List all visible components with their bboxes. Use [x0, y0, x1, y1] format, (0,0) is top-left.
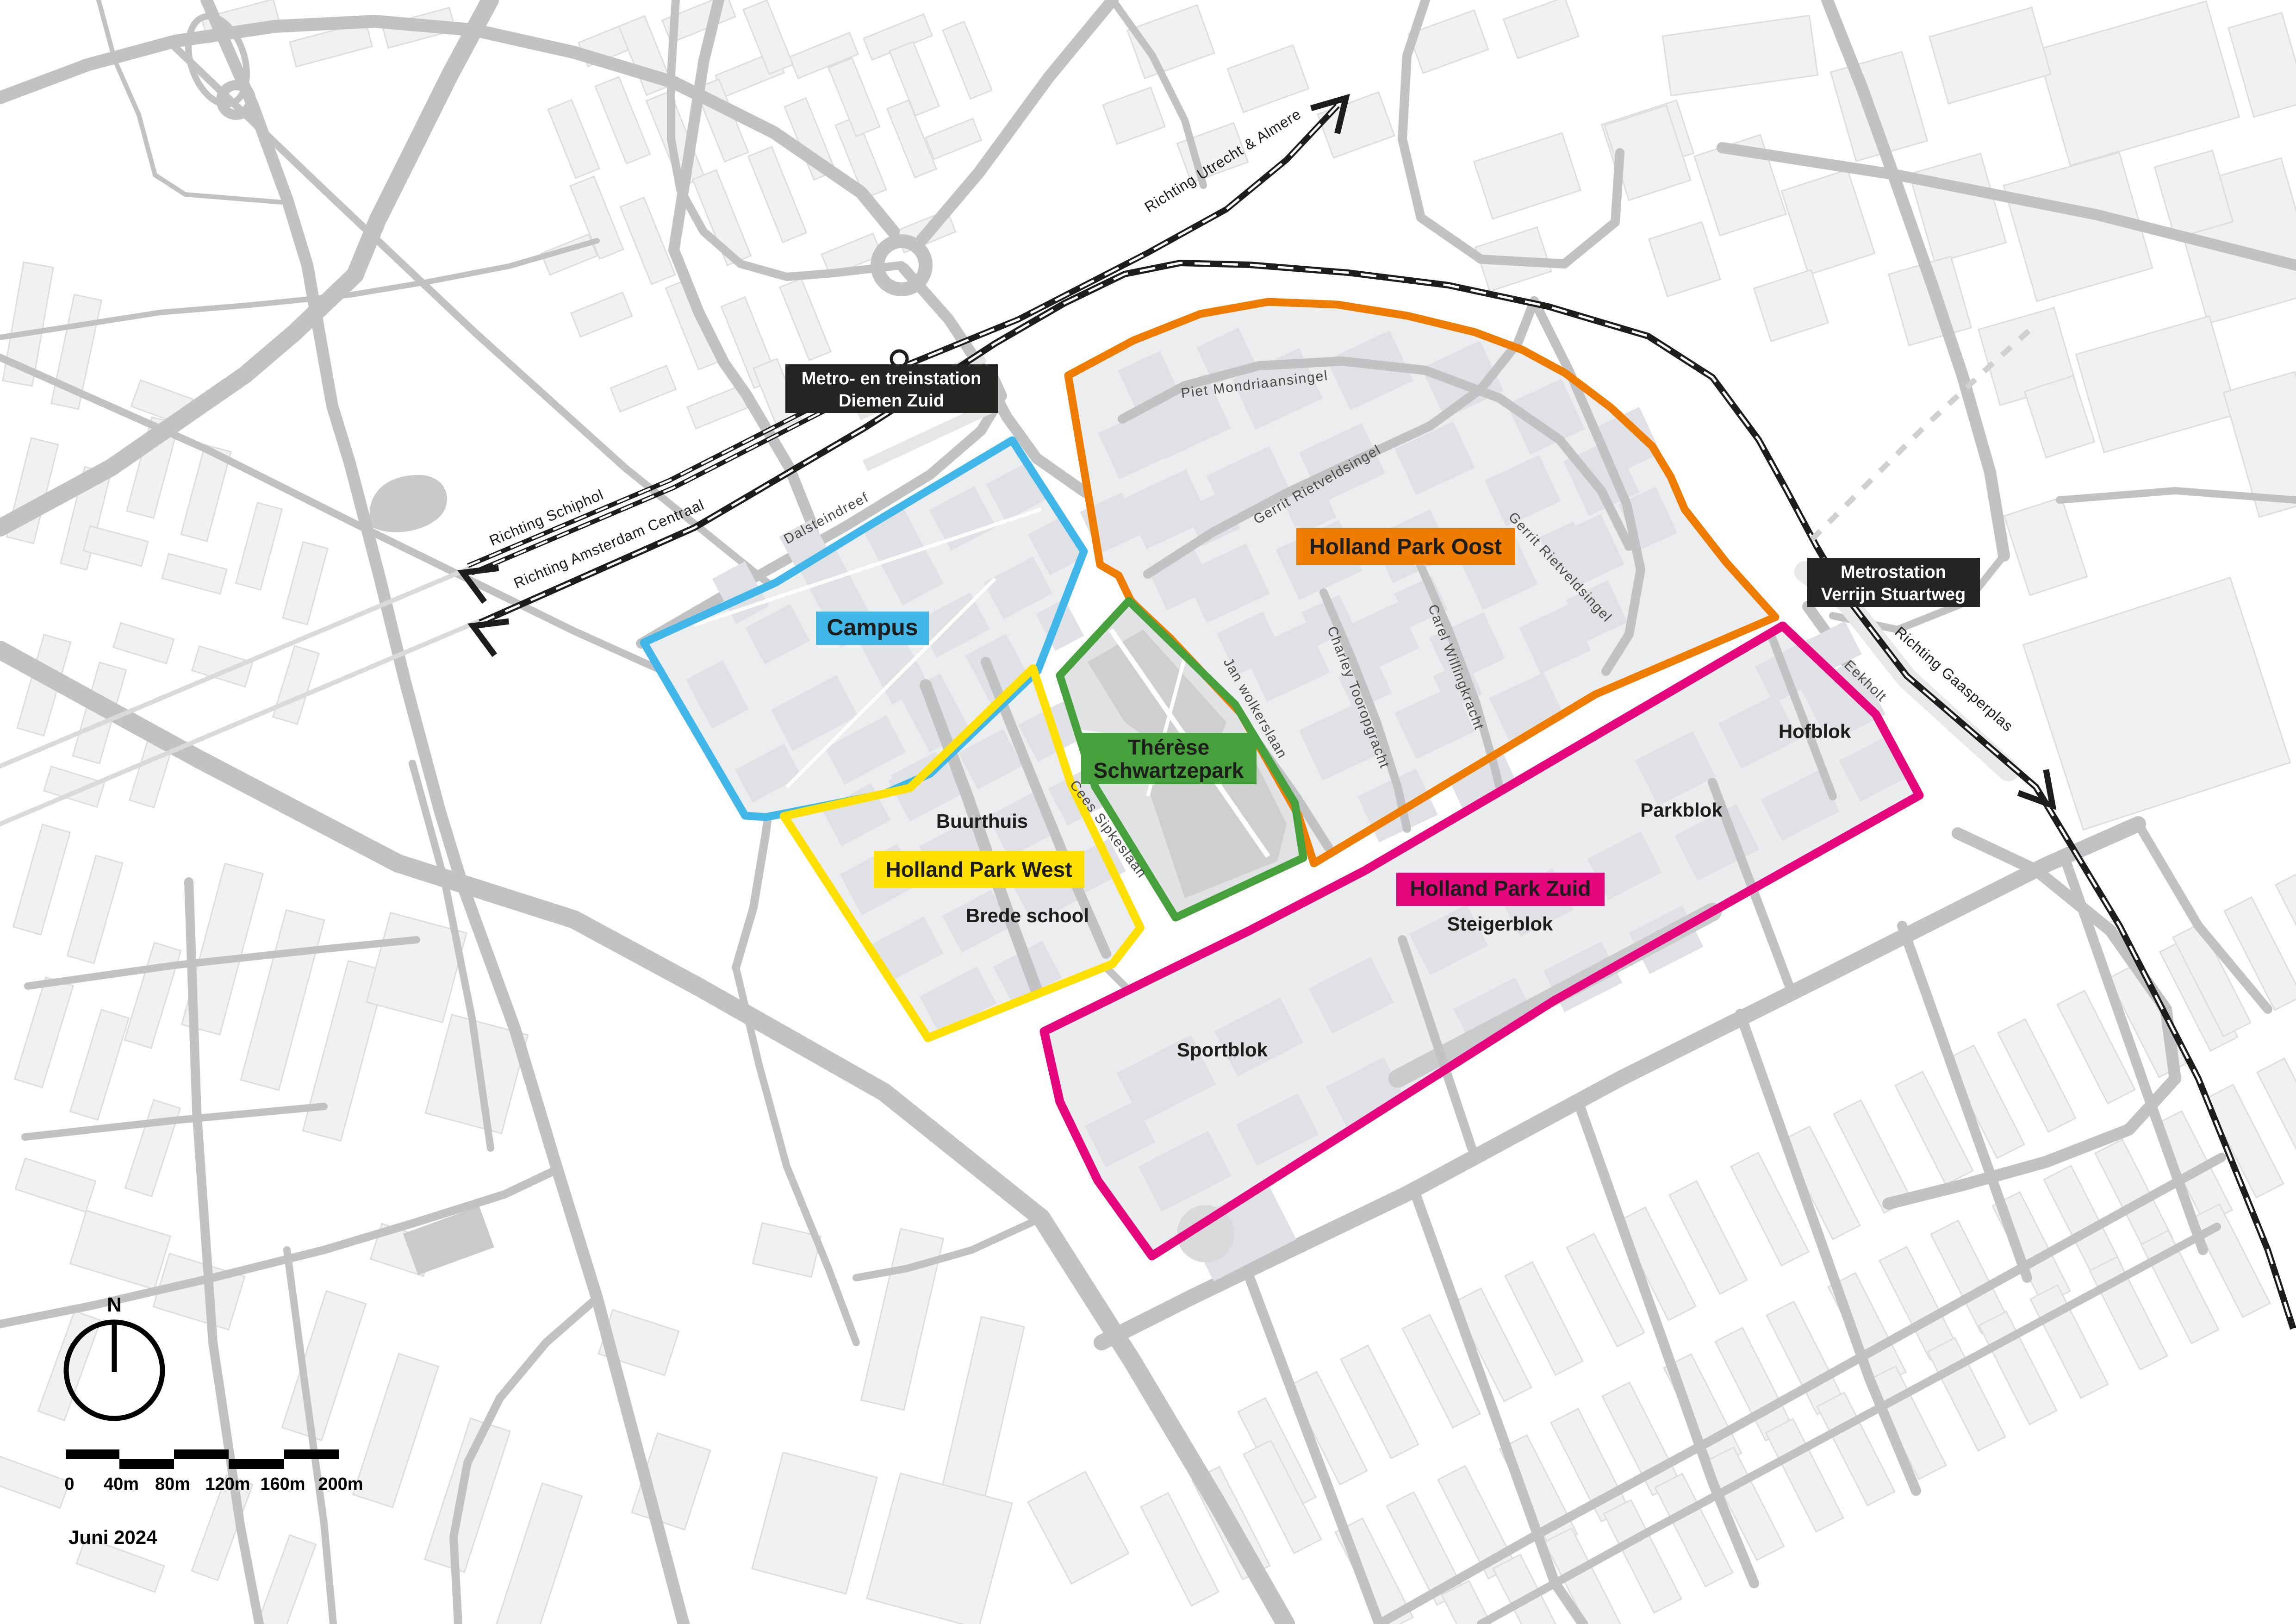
svg-text:Buurthuis: Buurthuis [936, 810, 1028, 832]
svg-text:Verrijn Stuartweg: Verrijn Stuartweg [1821, 585, 1966, 604]
svg-text:0: 0 [64, 1474, 74, 1494]
svg-text:Holland Park Oost: Holland Park Oost [1309, 535, 1502, 559]
svg-text:N: N [107, 1293, 122, 1316]
svg-text:Sportblok: Sportblok [1177, 1039, 1268, 1061]
svg-text:Metrostation: Metrostation [1841, 562, 1946, 582]
svg-text:Campus: Campus [827, 614, 918, 640]
svg-text:Metro- en treinstation: Metro- en treinstation [802, 369, 981, 388]
svg-text:Hofblok: Hofblok [1779, 720, 1851, 742]
svg-text:Schwartzepark: Schwartzepark [1094, 758, 1244, 782]
svg-text:Parkblok: Parkblok [1640, 799, 1723, 821]
svg-text:Holland Park Zuid: Holland Park Zuid [1410, 876, 1591, 900]
svg-text:200m: 200m [318, 1474, 363, 1494]
svg-text:160m: 160m [260, 1474, 305, 1494]
svg-text:Thérèse: Thérèse [1128, 735, 1209, 759]
svg-text:Diemen Zuid: Diemen Zuid [839, 391, 944, 411]
svg-text:80m: 80m [155, 1474, 190, 1494]
svg-text:Juni 2024: Juni 2024 [68, 1526, 157, 1548]
svg-text:120m: 120m [205, 1474, 250, 1494]
svg-text:Steigerblok: Steigerblok [1447, 913, 1553, 935]
svg-text:40m: 40m [104, 1474, 139, 1494]
svg-text:Brede school: Brede school [966, 905, 1089, 926]
svg-text:Holland Park West: Holland Park West [885, 857, 1072, 881]
